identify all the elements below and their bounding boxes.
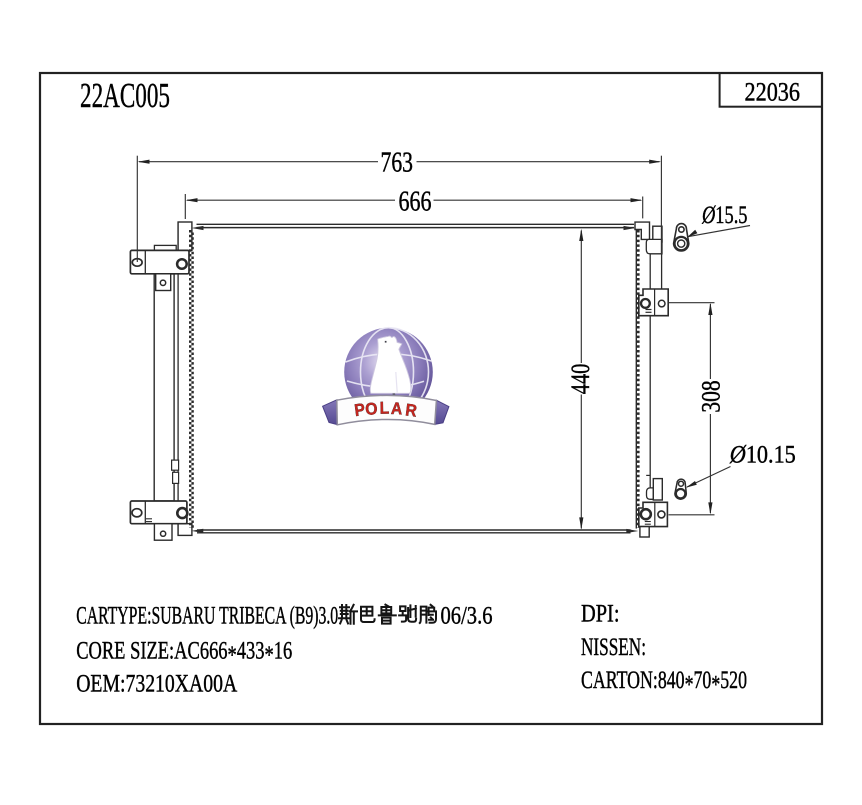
svg-text:OEM:73210XA00A: OEM:73210XA00A: [76, 671, 237, 698]
svg-text:Ø15.5: Ø15.5: [701, 202, 747, 229]
svg-text:666: 666: [399, 187, 432, 218]
svg-text:CORE SIZE:AC666*433*16: CORE SIZE:AC666*433*16: [76, 637, 292, 669]
svg-text:22AC005: 22AC005: [80, 76, 170, 115]
svg-text:Ø10.15: Ø10.15: [729, 442, 796, 469]
svg-text:308: 308: [696, 380, 725, 412]
svg-text:440: 440: [566, 364, 595, 395]
svg-text:06/3.6: 06/3.6: [441, 603, 493, 630]
svg-text:763: 763: [381, 148, 414, 179]
svg-text:A: A: [390, 399, 402, 418]
svg-text:L: L: [380, 399, 390, 418]
svg-text:22036: 22036: [745, 78, 801, 107]
svg-text:CARTYPE:SUBARU TRIBECA (B9)3.0: CARTYPE:SUBARU TRIBECA (B9)3.0: [76, 603, 338, 630]
svg-text:NISSEN:: NISSEN:: [581, 634, 646, 661]
svg-text:DPI:: DPI:: [581, 601, 620, 628]
svg-text:CARTON:840*70*520: CARTON:840*70*520: [581, 667, 747, 699]
svg-text:O: O: [365, 399, 379, 419]
